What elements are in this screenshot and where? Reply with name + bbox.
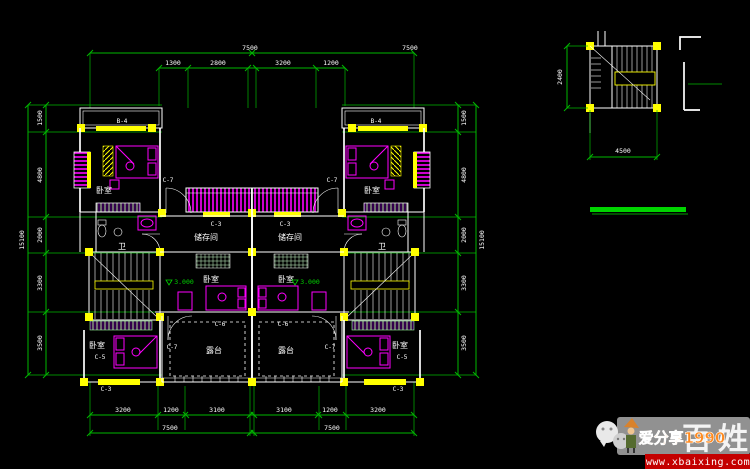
- dim-label: 3100: [209, 406, 225, 414]
- dim-label: 3500: [460, 335, 468, 351]
- bed-icon: [206, 286, 246, 310]
- tag-c3: C-3: [393, 386, 404, 393]
- dim-label: 1500: [460, 110, 468, 126]
- rug: [196, 254, 230, 268]
- tag-c3: C-3: [211, 221, 222, 228]
- toilet-icon: [98, 220, 122, 237]
- room-label-bedroom: 卧室: [278, 274, 294, 284]
- dim-label: 3500: [36, 335, 44, 351]
- stair-detail: 4500 2400: [556, 31, 722, 160]
- tag-c7: C-7: [167, 344, 178, 351]
- wall-stub: [684, 62, 700, 110]
- column-node: [77, 124, 85, 132]
- room-label-storage: 储存间: [278, 232, 302, 242]
- bed-icon: [114, 336, 157, 368]
- wall-stub: [680, 37, 701, 50]
- tag-c7: C-7: [325, 344, 336, 351]
- highlight-bar: [590, 207, 688, 214]
- elevation-markers: 3.000 3.000: [166, 278, 320, 286]
- room-label-bath: 卫: [118, 242, 126, 251]
- dresser: [178, 292, 192, 310]
- tag-c5: C-5: [397, 354, 408, 361]
- elevation-label: 3.000: [174, 278, 194, 286]
- elevation-label: 3.000: [300, 278, 320, 286]
- side-balcony: [74, 152, 91, 188]
- dim-label: 3300: [460, 275, 468, 291]
- room-label-bedroom: 卧室: [392, 340, 408, 350]
- dim-label: 1200: [323, 59, 339, 67]
- window-b4: [96, 126, 146, 131]
- elevation-triangle-icon: [166, 280, 172, 285]
- tag-b4: B-4: [117, 118, 128, 125]
- floor-plan-drawing: 7500 7500 1300 2800 3200 1200 3200 1200 …: [0, 0, 750, 469]
- room-label-bath: 卫: [378, 242, 386, 251]
- dim-label: 7500: [242, 44, 258, 52]
- dim-label: 4800: [36, 167, 44, 183]
- room-label-bedroom: 卧室: [89, 340, 105, 350]
- dim-label: 2800: [210, 59, 226, 67]
- tag-b4: B-4: [371, 118, 382, 125]
- dim-label: 1500: [36, 110, 44, 126]
- window-c3: [98, 379, 140, 385]
- center-balcony: [158, 188, 256, 217]
- wall-stub: [598, 31, 605, 46]
- dim-label: 3200: [275, 59, 291, 67]
- dim-label: 7500: [324, 424, 340, 432]
- tag-c6: C-6: [278, 321, 289, 328]
- dim-label: 2400: [556, 69, 564, 85]
- room-label-bedroom: 卧室: [96, 185, 112, 195]
- washer-icon: [138, 216, 156, 230]
- room-label-bedroom: 卧室: [203, 274, 219, 284]
- dim-label: 3100: [276, 406, 292, 414]
- dim-label: 2000: [460, 227, 468, 243]
- room-label-storage: 储存间: [194, 232, 218, 242]
- room-label-bedroom: 卧室: [364, 185, 380, 195]
- dim-label: 4500: [615, 147, 631, 155]
- window-band: [90, 321, 152, 330]
- dim-label: 1200: [322, 406, 338, 414]
- dim-label: 7500: [162, 424, 178, 432]
- dim-label: 3200: [115, 406, 131, 414]
- dim-label: 2000: [36, 227, 44, 243]
- door-arc: [168, 316, 192, 340]
- dim-label: 15100: [18, 230, 26, 250]
- staircase: [85, 248, 164, 330]
- dim-label: 3300: [36, 275, 44, 291]
- watermark-brand: 爱分享1990: [639, 429, 726, 447]
- cad-canvas: 7500 7500 1300 2800 3200 1200 3200 1200 …: [0, 0, 750, 469]
- dim-label: 3200: [370, 406, 386, 414]
- dim-label: 4800: [460, 167, 468, 183]
- bed-icon: [110, 146, 158, 189]
- dim-label: 1300: [165, 59, 181, 67]
- tag-c6: C-6: [215, 321, 226, 328]
- tag-c3: C-3: [101, 386, 112, 393]
- room-label-terrace: 露台: [206, 345, 222, 355]
- dim-label: 15100: [478, 230, 486, 250]
- window-band: [96, 203, 140, 212]
- column-node: [148, 124, 156, 132]
- tag-c5: C-5: [95, 354, 106, 361]
- watermark: 百 姓 爱分享1990 www.xbaixing.com: [596, 417, 750, 469]
- dim-label: 7500: [402, 44, 418, 52]
- wardrobe: [103, 146, 113, 176]
- stair-landing: [95, 281, 153, 289]
- watermark-site-url: www.xbaixing.com: [646, 457, 750, 468]
- tag-c7: C-7: [163, 177, 174, 184]
- tag-c7: C-7: [327, 177, 338, 184]
- room-label-terrace: 露台: [278, 345, 294, 355]
- tag-c3: C-3: [280, 221, 291, 228]
- dim-label: 1200: [163, 406, 179, 414]
